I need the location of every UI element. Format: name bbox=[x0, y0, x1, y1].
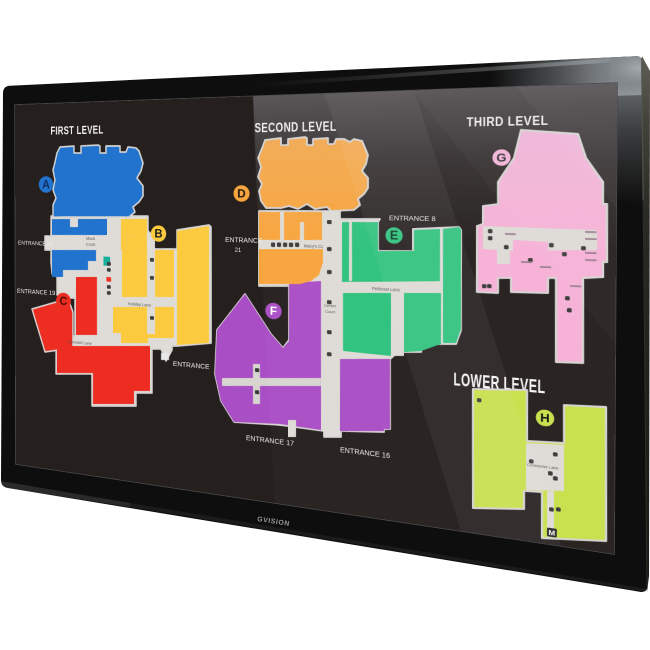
svg-text:ENTRANCE: ENTRANCE bbox=[173, 361, 210, 371]
svg-text:FIRST LEVEL: FIRST LEVEL bbox=[51, 123, 104, 137]
svg-text:ENTRANCE 20: ENTRANCE 20 bbox=[18, 240, 53, 248]
svg-text:21: 21 bbox=[235, 247, 242, 254]
svg-text:ENTRANCE: ENTRANCE bbox=[225, 237, 263, 245]
svg-text:D: D bbox=[237, 188, 245, 201]
svg-text:C: C bbox=[60, 295, 68, 309]
svg-text:A: A bbox=[42, 179, 50, 192]
svg-text:B: B bbox=[154, 228, 163, 241]
svg-text:Court: Court bbox=[86, 242, 96, 247]
svg-text:Mock: Mock bbox=[86, 237, 95, 242]
svg-text:ENTRANCE 19: ENTRANCE 19 bbox=[17, 289, 55, 298]
